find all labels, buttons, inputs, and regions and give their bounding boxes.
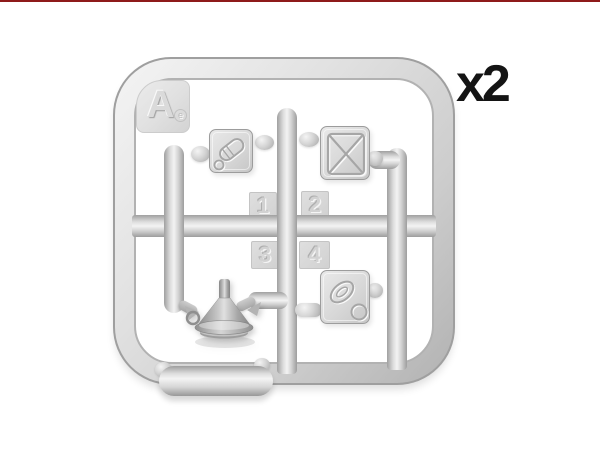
sprue-letter-tag: A e: [136, 80, 190, 133]
page-top-rule: [0, 0, 600, 2]
funnel-icon: [183, 276, 263, 356]
jerry-can-cap-plate-icon: [210, 130, 254, 174]
sprue-gate: [191, 146, 210, 162]
quantity-label: x2: [456, 58, 508, 110]
sprue-gate: [299, 132, 319, 147]
part-capsule: [159, 366, 273, 396]
part-plate-4: [320, 270, 370, 324]
main-vertical-runner: [277, 108, 297, 374]
sprue-gate: [255, 135, 274, 150]
jerry-can-handle-plate-icon: [321, 271, 371, 325]
right-branch-runner: [387, 148, 407, 370]
part-plate-1: [209, 129, 253, 173]
sprue-diagram-page: A e 1 2 3 4: [0, 0, 600, 450]
part-number-tag-4: 4: [299, 241, 330, 269]
part-plate-2: [320, 126, 370, 180]
sprue-letter: A: [147, 84, 174, 127]
mold-mark: e: [174, 109, 187, 122]
left-branch-runner: [164, 145, 184, 313]
sprue-gate: [295, 303, 322, 317]
part-number-tag-3: 3: [251, 241, 279, 269]
jerry-can-x-panel-plate-icon: [321, 127, 371, 181]
